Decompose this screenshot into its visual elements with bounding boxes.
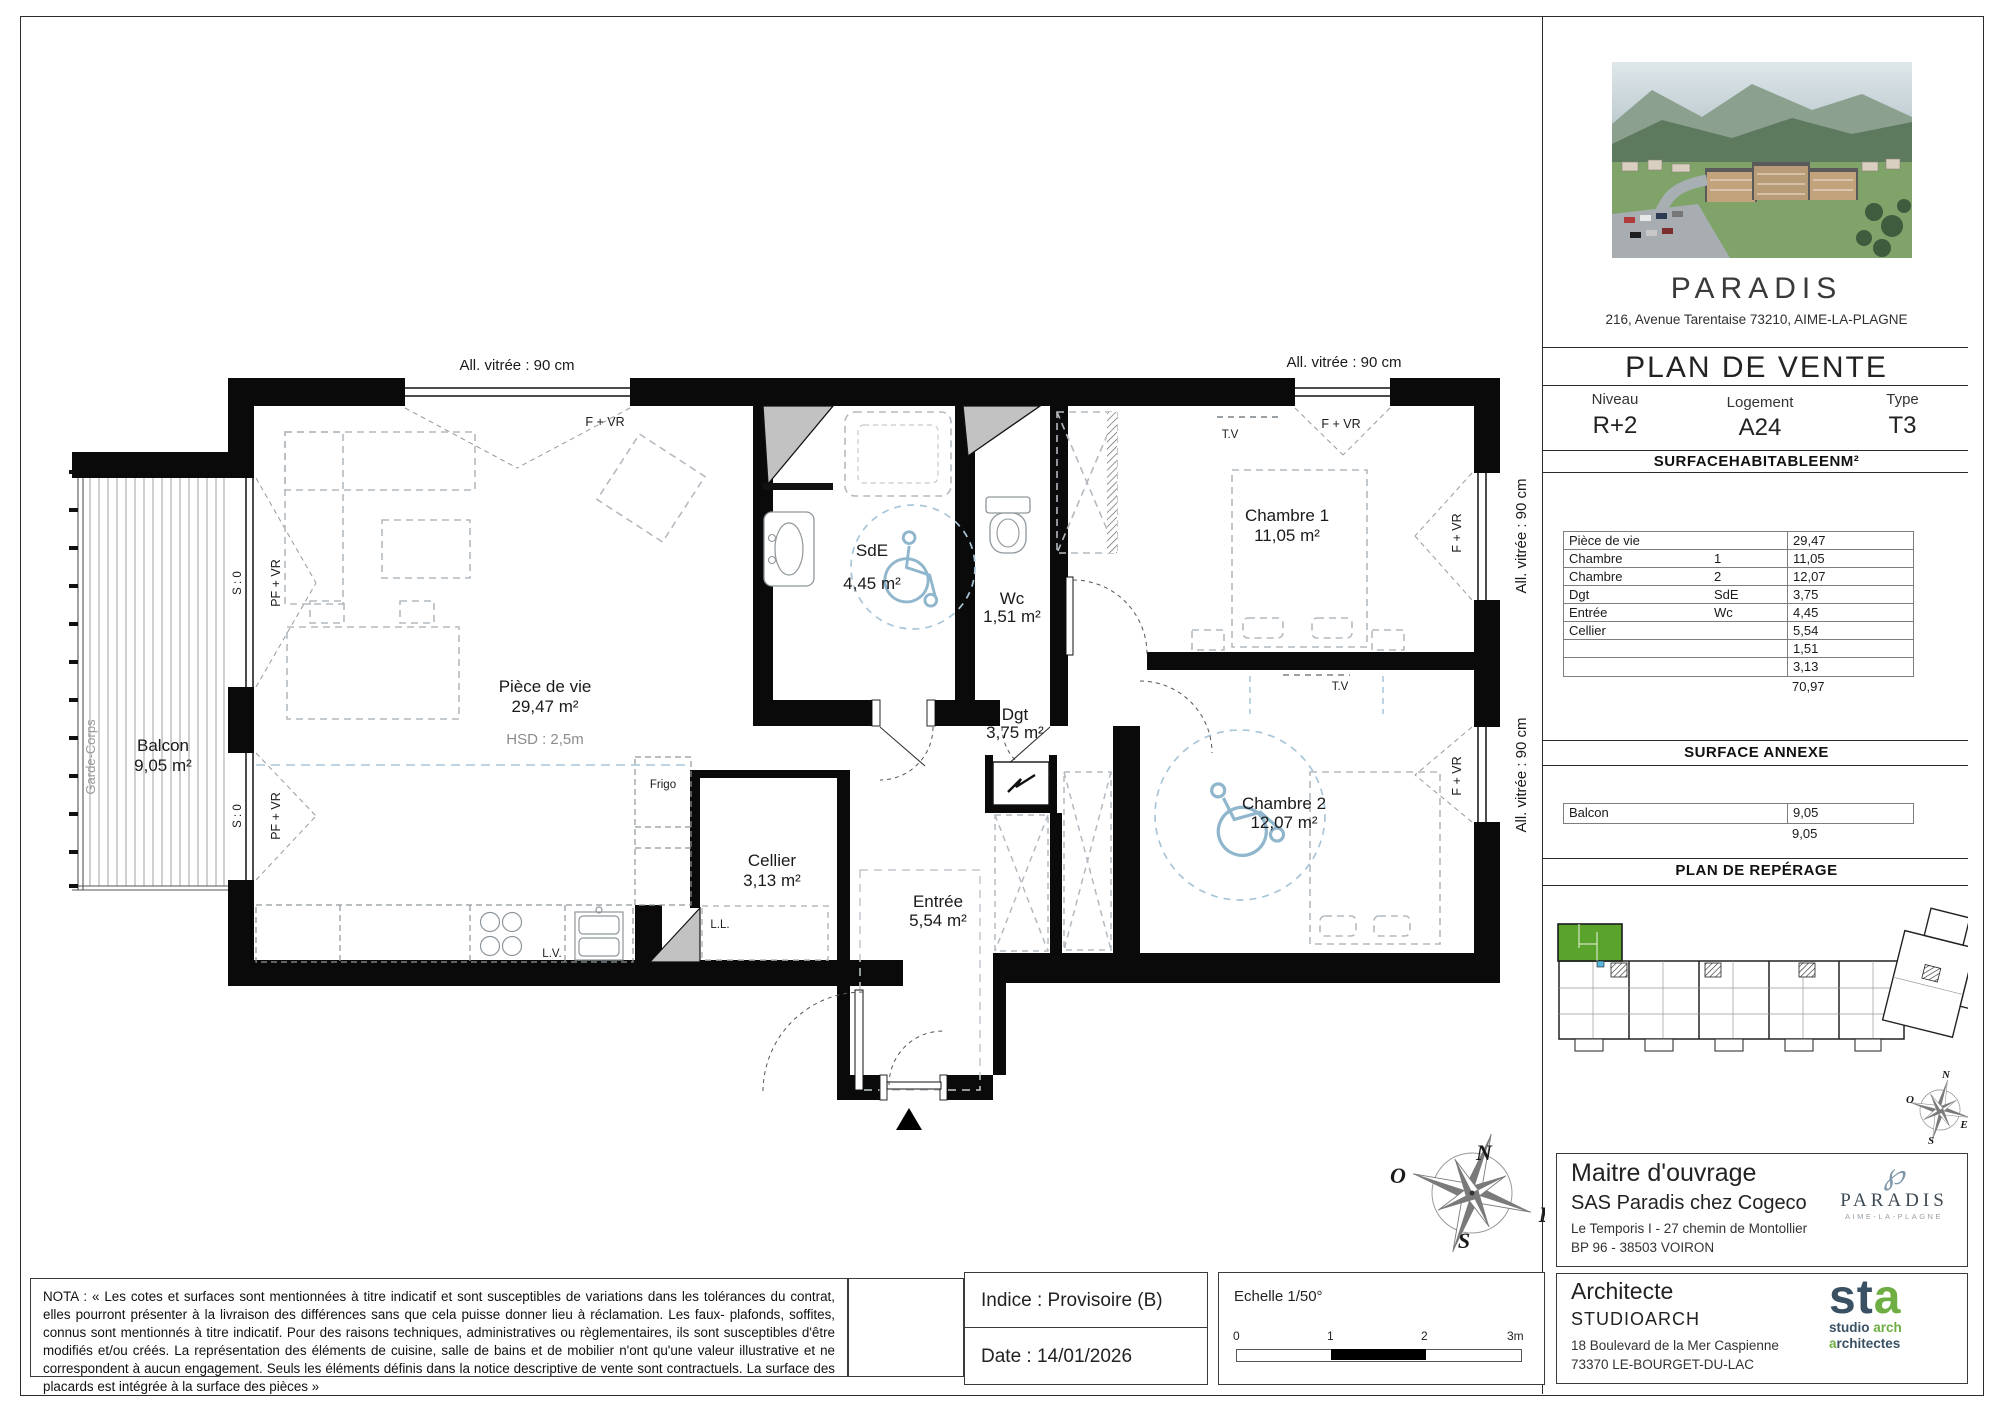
table-row: Pièce de vie [1563, 531, 1794, 551]
architecte-title: Architecte [1571, 1278, 1673, 1305]
tv-label-1: T.V [1222, 429, 1239, 441]
table-row: Balcon [1563, 803, 1794, 824]
row-value: 11,05 [1787, 549, 1914, 569]
lv-label: L.V. [542, 948, 561, 960]
architecte-address2: 73370 LE-BOURGET-DU-LAC [1571, 1357, 1754, 1372]
compass-south: S [1928, 1135, 1934, 1147]
row-label: Chambre [1569, 569, 1622, 584]
sta-logo-studio: studio [1829, 1320, 1873, 1335]
room-dgt: Dgt [1002, 705, 1029, 724]
divider [1542, 885, 1968, 886]
compass-rose-icon: O N E S [1390, 1115, 1545, 1271]
hall-closets [702, 772, 1111, 1090]
row-value: 1,51 [1787, 639, 1914, 659]
room-balcon: Balcon [137, 736, 189, 755]
type-label: Type [1850, 391, 1955, 408]
scale-bar-filled [1331, 1349, 1426, 1360]
row-label2: SdE [1714, 586, 1739, 603]
echelle-box: Echelle 1/50° 0 1 2 3m [1218, 1272, 1545, 1385]
sta-logo-st: st [1829, 1271, 1874, 1324]
entrance-arrow-icon [896, 1108, 922, 1130]
electrical-panel-icon [993, 762, 1049, 805]
maitre-address1: Le Temporis I - 27 chemin de Montollier [1571, 1221, 1807, 1236]
architecte-name: STUDIOARCH [1571, 1309, 1700, 1330]
room-chambre2: Chambre 2 [1242, 794, 1326, 813]
niveau-label: Niveau [1560, 391, 1670, 408]
row-value: 4,45 [1787, 603, 1914, 623]
balcony-deck [69, 452, 228, 890]
s0-label-1: S : 0 [232, 571, 244, 595]
doc-title: PLAN DE VENTE [1545, 351, 1968, 385]
plan-de-vente-sheet: All. vitrée : 90 cm All. vitrée : 90 cm … [0, 0, 2000, 1414]
row-label: Chambre [1569, 551, 1622, 566]
row-value: 9,05 [1787, 803, 1914, 824]
room-chambre1-area: 11,05 m² [1254, 526, 1320, 545]
sta-logo: sta studio arch architectes [1829, 1276, 1961, 1352]
date-value: Date : 14/01/2026 [981, 1346, 1132, 1368]
paradis-logo-name: PARADIS [1825, 1190, 1963, 1212]
compass-south: S [1458, 1228, 1470, 1253]
scale-bar [1236, 1349, 1522, 1362]
paradis-logo: ℘ PARADIS AIME-LA-PLAGNE [1825, 1160, 1963, 1221]
living-furniture [285, 432, 705, 719]
scale-tick-2: 2 [1421, 1329, 1428, 1343]
room-piece-de-vie: Pièce de vie [499, 677, 592, 696]
annexe-total: 9,05 [1787, 826, 1912, 841]
pfvr-label-2: PF + VR [269, 792, 283, 840]
sta-logo-arch: arch [1873, 1320, 1902, 1335]
panel-divider [1542, 16, 1543, 1394]
table-row: EntréeWc [1563, 603, 1794, 623]
scale-tick-3: 3m [1507, 1329, 1524, 1343]
architecte-box: Architecte STUDIOARCH 18 Boulevard de la… [1556, 1273, 1968, 1384]
compass-west: O [1390, 1163, 1406, 1188]
type-value: T3 [1850, 412, 1955, 440]
hsd-label: HSD : 2,5m [506, 731, 584, 748]
ll-label: L.L. [710, 919, 729, 931]
chambre1-wardrobe-hatch [1107, 412, 1117, 553]
s0-label-2: S : 0 [232, 804, 244, 828]
echelle-label: Echelle 1/50° [1234, 1288, 1323, 1305]
room-sde-area: 4,45 m² [843, 574, 901, 593]
logement-label: Logement [1690, 394, 1830, 411]
divider [1542, 472, 1968, 473]
reperage-compass-icon: N O E S [1902, 1069, 1968, 1148]
divider [1542, 385, 1968, 386]
maitre-douvrage-box: Maitre d'ouvrage SAS Paradis chez Cogeco… [1556, 1153, 1968, 1267]
room-cellier: Cellier [748, 851, 797, 870]
table-row [1563, 657, 1794, 677]
nota-text: NOTA : « Les cotes et surfaces sont ment… [30, 1278, 848, 1377]
project-photo [1612, 62, 1912, 258]
row-label: Entrée [1569, 605, 1607, 620]
sta-logo-a2: a [1829, 1336, 1837, 1351]
room-chambre2-area: 12,07 m² [1250, 813, 1317, 832]
chambre2-furniture [1310, 772, 1440, 944]
fvr-label-4: F + VR [1450, 756, 1464, 795]
table-row: Chambre2 [1563, 567, 1794, 587]
niveau-value: R+2 [1560, 412, 1670, 440]
highlighted-unit [1558, 924, 1622, 967]
room-chambre1: Chambre 1 [1245, 506, 1329, 525]
tv-marks [1217, 417, 1350, 675]
row-value: 3,13 [1787, 657, 1914, 677]
row-value: 5,54 [1787, 621, 1914, 641]
divider [1542, 450, 1968, 451]
row-label2: 1 [1714, 550, 1721, 567]
divider [1542, 347, 1968, 348]
reperage-plan: N O E S [1555, 888, 1968, 1150]
row-label2: Wc [1714, 604, 1733, 621]
architecte-address1: 18 Boulevard de la Mer Caspienne [1571, 1338, 1779, 1353]
pfvr-label-1: PF + VR [269, 559, 283, 607]
room-dgt-area: 3,75 m² [986, 723, 1044, 742]
room-entree-area: 5,54 m² [909, 911, 967, 930]
project-name: PARADIS [1545, 272, 1968, 306]
allege-label-top2: All. vitrée : 90 cm [1286, 354, 1401, 371]
room-sde: SdE [856, 541, 888, 560]
sta-logo-rchitectes: rchitectes [1837, 1336, 1901, 1351]
chambre2-markers [1250, 676, 1383, 714]
room-balcon-area: 9,05 m² [134, 756, 192, 775]
logement-value: A24 [1690, 414, 1830, 442]
room-wc: Wc [1000, 589, 1025, 608]
reperage-header: PLAN DE REPÉRAGE [1545, 862, 1968, 879]
divider [1542, 858, 1968, 859]
row-label: Pièce de vie [1569, 533, 1640, 548]
maitre-title: Maitre d'ouvrage [1571, 1159, 1756, 1188]
fvr-label-3: F + VR [1450, 513, 1464, 552]
row-value: 12,07 [1787, 567, 1914, 587]
compass-north: N [1475, 1140, 1493, 1165]
empty-cell [848, 1278, 964, 1377]
maitre-address2: BP 96 - 38503 VOIRON [1571, 1240, 1714, 1255]
fvr-label-1: F + VR [585, 415, 624, 429]
tv-label-2: T.V [1332, 681, 1349, 693]
room-cellier-area: 3,13 m² [743, 871, 801, 890]
row-label2: 2 [1714, 568, 1721, 585]
table-row: Cellier [1563, 621, 1794, 641]
fvr-label-2: F + VR [1321, 417, 1360, 431]
room-wc-area: 1,51 m² [983, 607, 1041, 626]
allege-label-top1: All. vitrée : 90 cm [459, 357, 574, 374]
guardrail-ticks [69, 470, 78, 888]
maitre-name: SAS Paradis chez Cogeco [1571, 1192, 1807, 1215]
row-label: Cellier [1569, 623, 1606, 638]
scale-tick-1: 1 [1327, 1329, 1334, 1343]
compass-east: E [1959, 1119, 1967, 1131]
allege-label-right2: All. vitrée : 90 cm [1513, 717, 1530, 832]
floor-plan: All. vitrée : 90 cm All. vitrée : 90 cm … [0, 0, 1545, 1414]
room-piece-de-vie-area: 29,47 m² [511, 697, 578, 716]
surface-habitable-header: SURFACEHABITABLEENM² [1545, 453, 1968, 470]
table-row [1563, 639, 1794, 659]
table-row: DgtSdE [1563, 585, 1794, 605]
kitchen [256, 757, 691, 962]
paradis-logo-sub: AIME-LA-PLAGNE [1825, 1212, 1963, 1221]
surface-annexe-header: SURFACE ANNEXE [1545, 744, 1968, 761]
compass-north: N [1941, 1069, 1951, 1081]
row-value: 29,47 [1787, 531, 1914, 551]
row-label: Dgt [1569, 587, 1589, 602]
scale-tick-0: 0 [1233, 1329, 1240, 1343]
garde-corps-label: Garde-Corps [83, 719, 98, 795]
paradis-monogram-icon: ℘ [1825, 1160, 1963, 1190]
project-address: 216, Avenue Tarentaise 73210, AIME-LA-PL… [1545, 312, 1968, 327]
divider [1542, 765, 1968, 766]
wheelchair-icon [881, 529, 950, 609]
table-row: Chambre1 [1563, 549, 1794, 569]
frigo-label: Frigo [650, 779, 676, 791]
indice-box: Indice : Provisoire (B) Date : 14/01/202… [964, 1272, 1208, 1385]
divider [1542, 740, 1968, 741]
surface-total: 70,97 [1787, 679, 1912, 694]
compass-west: O [1906, 1094, 1914, 1106]
divider [965, 1327, 1207, 1328]
allege-label-right1: All. vitrée : 90 cm [1513, 478, 1530, 593]
indice-value: Indice : Provisoire (B) [981, 1290, 1163, 1312]
sta-logo-a: a [1874, 1271, 1902, 1324]
room-entree: Entrée [913, 892, 963, 911]
row-value: 3,75 [1787, 585, 1914, 605]
